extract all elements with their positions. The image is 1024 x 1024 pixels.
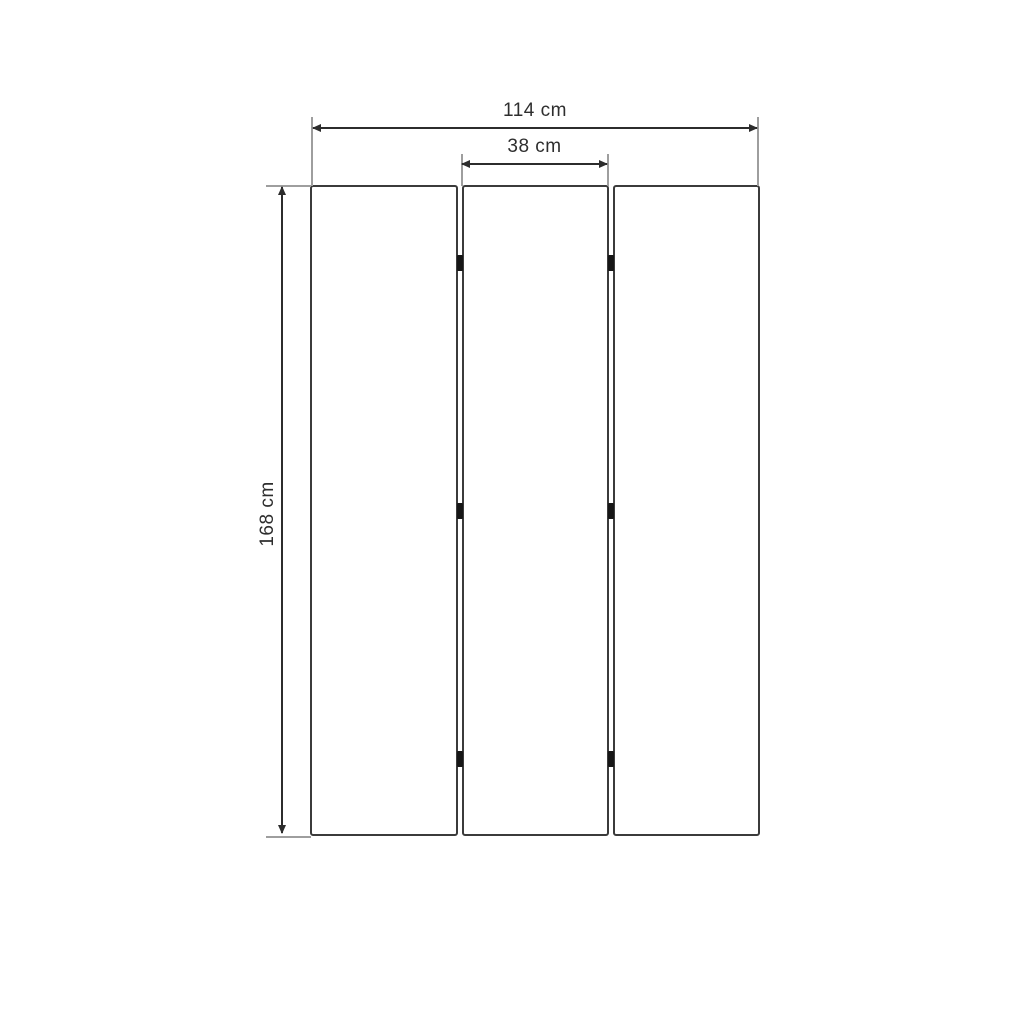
extension-line-height-top (266, 185, 311, 187)
dimension-drawing-canvas: 114 cm 38 cm 168 cm (0, 0, 1024, 1024)
hinge-right-middle (608, 503, 614, 519)
panel-width-dimension-line (462, 163, 607, 165)
arrowhead-right-icon (599, 160, 608, 168)
hinge-right-bottom (608, 751, 614, 767)
extension-line-height-bottom (266, 836, 311, 838)
arrowhead-down-icon (278, 825, 286, 834)
extension-line-panel-left (461, 154, 463, 186)
hinge-right-top (608, 255, 614, 271)
arrowhead-left-icon (312, 124, 321, 132)
panel-left (310, 185, 458, 836)
panel-right (613, 185, 760, 836)
height-dimension-line (281, 187, 283, 833)
arrowhead-right-icon (749, 124, 758, 132)
hinge-left-middle (457, 503, 463, 519)
extension-line-panel-right (607, 154, 609, 186)
hinge-left-top (457, 255, 463, 271)
width-dimension-label: 114 cm (313, 100, 757, 122)
panel-middle (462, 185, 609, 836)
arrowhead-up-icon (278, 186, 286, 195)
hinge-left-bottom (457, 751, 463, 767)
width-dimension-line (313, 127, 757, 129)
arrowhead-left-icon (461, 160, 470, 168)
panel-width-dimension-label: 38 cm (462, 136, 607, 158)
